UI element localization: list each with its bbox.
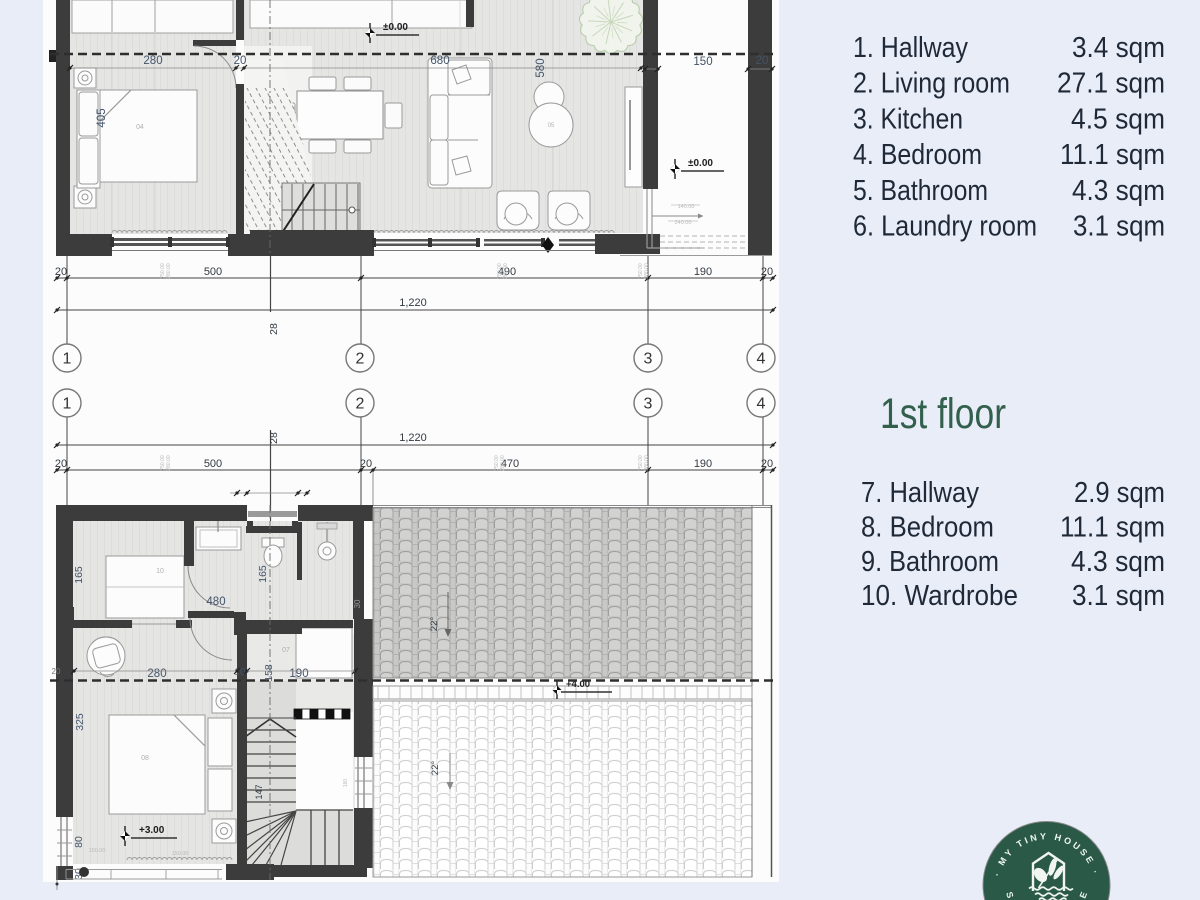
svg-text:3.4 sqm: 3.4 sqm [1072,32,1165,64]
svg-text:150.00: 150.00 [172,851,189,857]
svg-text:10: 10 [156,568,164,575]
svg-text:±0.00: ±0.00 [688,158,713,169]
svg-text:27.1 sqm: 27.1 sqm [1057,68,1165,100]
svg-text:05: 05 [548,123,555,129]
svg-text:11.1 sqm: 11.1 sqm [1060,139,1165,171]
svg-text:22°: 22° [429,617,440,632]
svg-text:10. Wardrobe: 10. Wardrobe [861,580,1018,612]
svg-text:8. Bedroom: 8. Bedroom [861,511,994,543]
svg-text:4.3 sqm: 4.3 sqm [1072,175,1165,207]
svg-text:±0.00: ±0.00 [383,22,408,33]
svg-text:22°: 22° [430,761,441,776]
svg-text:180: 180 [343,779,349,788]
svg-text:580: 580 [535,58,547,77]
svg-text:20: 20 [761,266,773,278]
svg-text:150.00: 150.00 [89,848,106,854]
svg-text:280: 280 [143,55,162,67]
svg-text:20: 20 [761,458,773,470]
svg-text:190: 190 [694,266,712,278]
svg-text:30: 30 [353,599,362,608]
svg-text:3.1 sqm: 3.1 sqm [1072,580,1165,612]
svg-text:280.00: 280.00 [503,263,509,279]
svg-text:150: 150 [693,56,712,68]
svg-text:2. Living room: 2. Living room [853,68,1010,100]
svg-text:3.1 sqm: 3.1 sqm [1073,211,1165,243]
svg-text:280.00: 280.00 [166,455,172,471]
svg-text:4.3 sqm: 4.3 sqm [1071,546,1165,578]
svg-text:680: 680 [430,55,449,67]
svg-text:165: 165 [257,565,269,583]
svg-text:11.1 sqm: 11.1 sqm [1060,511,1165,543]
svg-text:280.00: 280.00 [644,455,650,471]
svg-text:20: 20 [756,55,769,67]
svg-text:190: 190 [289,668,308,680]
svg-text:07: 07 [282,647,290,654]
svg-text:147: 147 [254,784,264,799]
svg-text:280.00: 280.00 [500,455,506,471]
svg-text:20: 20 [55,458,67,470]
svg-text:2: 2 [356,351,365,368]
svg-text:325: 325 [74,713,86,731]
svg-text:1: 1 [63,351,72,368]
svg-text:1st floor: 1st floor [880,390,1006,438]
svg-text:04: 04 [136,124,144,131]
svg-text:28: 28 [268,323,280,335]
svg-text:2.9 sqm: 2.9 sqm [1074,477,1165,509]
svg-text:08: 08 [141,755,149,762]
svg-text:20: 20 [55,266,67,278]
svg-text:190: 190 [694,458,712,470]
svg-text:3: 3 [644,351,653,368]
svg-text:165: 165 [73,566,85,584]
svg-text:80: 80 [73,836,85,848]
svg-text:20: 20 [234,55,247,67]
svg-text:20: 20 [52,667,61,676]
svg-text:5. Bathroom: 5. Bathroom [853,175,988,207]
svg-text:405: 405 [96,108,108,127]
svg-text:2: 2 [356,396,365,413]
svg-text:20: 20 [360,458,372,470]
svg-text:4: 4 [757,351,766,368]
svg-text:90: 90 [258,511,266,518]
svg-text:4: 4 [757,396,766,413]
svg-text:3: 3 [644,396,653,413]
svg-text:6. Laundry room: 6. Laundry room [853,211,1037,243]
svg-text:4.5 sqm: 4.5 sqm [1071,103,1165,135]
svg-text:500: 500 [204,458,222,470]
svg-text:280.00: 280.00 [644,263,650,279]
svg-text:7. Hallway: 7. Hallway [861,477,979,509]
svg-text:158: 158 [263,664,275,682]
svg-text:1. Hallway: 1. Hallway [853,32,968,64]
svg-text:480: 480 [206,596,225,608]
svg-text:1,220: 1,220 [399,297,427,309]
svg-text:1: 1 [63,396,72,413]
svg-text:500: 500 [204,266,222,278]
svg-text:28: 28 [268,432,280,444]
svg-text:+3.00: +3.00 [139,825,165,836]
svg-text:1,220: 1,220 [399,432,427,444]
svg-text:9. Bathroom: 9. Bathroom [861,546,999,578]
svg-text:280: 280 [147,668,166,680]
svg-text:3. Kitchen: 3. Kitchen [853,103,963,135]
svg-text:280.00: 280.00 [166,263,172,279]
svg-text:4. Bedroom: 4. Bedroom [853,139,982,171]
